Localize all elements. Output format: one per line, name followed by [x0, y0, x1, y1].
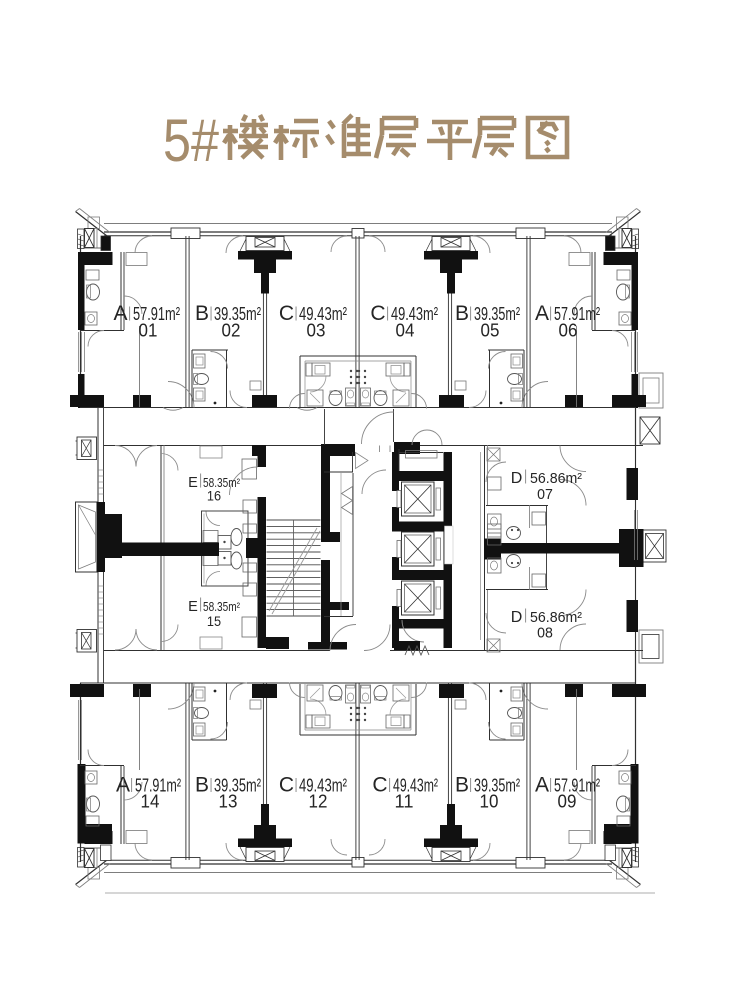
svg-text:A: A — [116, 774, 130, 797]
svg-text:14: 14 — [141, 792, 160, 812]
svg-text:D: D — [511, 470, 523, 487]
svg-text:15: 15 — [207, 614, 221, 629]
svg-text:E: E — [188, 599, 198, 615]
svg-text:04: 04 — [396, 321, 415, 341]
svg-text:B: B — [455, 774, 469, 797]
svg-text:C: C — [279, 302, 294, 325]
svg-text:16: 16 — [207, 489, 221, 504]
svg-text:12: 12 — [309, 792, 328, 812]
svg-text:B: B — [455, 302, 469, 325]
svg-text:07: 07 — [537, 486, 553, 503]
svg-text:E: E — [188, 475, 198, 491]
svg-text:08: 08 — [537, 625, 553, 642]
svg-text:C: C — [372, 774, 387, 797]
svg-text:A: A — [535, 302, 549, 325]
svg-text:58.35m²: 58.35m² — [203, 599, 241, 614]
svg-text:02: 02 — [222, 321, 241, 341]
svg-text:D: D — [511, 609, 523, 626]
svg-text:13: 13 — [219, 792, 238, 812]
svg-text:A: A — [113, 302, 127, 325]
svg-text:C: C — [370, 302, 385, 325]
svg-text:10: 10 — [480, 792, 499, 812]
svg-text:11: 11 — [395, 792, 414, 812]
svg-text:5#: 5# — [163, 107, 220, 174]
svg-text:B: B — [195, 774, 209, 797]
svg-text:56.86m²: 56.86m² — [530, 471, 582, 487]
svg-text:03: 03 — [307, 321, 326, 341]
svg-text:01: 01 — [139, 321, 158, 341]
svg-text:B: B — [195, 302, 209, 325]
svg-text:09: 09 — [558, 792, 577, 812]
svg-text:C: C — [279, 774, 294, 797]
svg-text:05: 05 — [481, 321, 500, 341]
svg-text:06: 06 — [559, 321, 578, 341]
svg-text:A: A — [535, 774, 549, 797]
